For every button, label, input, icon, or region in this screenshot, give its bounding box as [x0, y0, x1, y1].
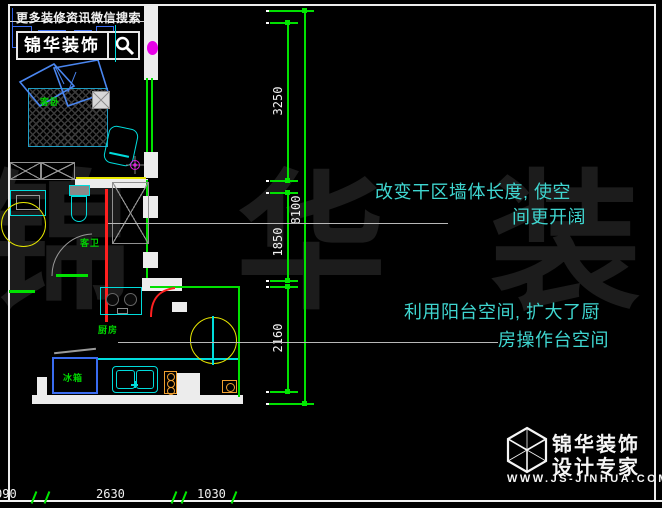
sink-basin: [136, 370, 154, 389]
ceiling-symbol-icon: [126, 156, 144, 174]
dim-node: [302, 401, 307, 406]
fridge-label: 冰箱: [63, 371, 83, 384]
dim-node: [302, 8, 307, 13]
dim-ext-dot: [266, 22, 269, 24]
sink-basin: [116, 370, 135, 389]
stove-knob: [117, 308, 128, 314]
kitchen-door-arc-red: [149, 286, 175, 317]
annotation-2-line-1: 利用阳台空间, 扩大了厨: [404, 298, 600, 324]
dim-ext-dot: [266, 286, 269, 288]
wardrobe: [10, 162, 41, 180]
dim-tick-line: [270, 22, 298, 24]
dim-tick-line: [270, 391, 298, 393]
logo-url: WWW.JS-JINHUA.COM: [507, 473, 662, 485]
frame-right-line: [654, 4, 656, 501]
frame-left-line: [8, 4, 10, 501]
dim-ext-dot: [266, 391, 269, 393]
leader-line-2: [118, 342, 498, 343]
dim-tick: [231, 491, 238, 504]
dim-ext-dot: [266, 192, 269, 194]
fixture-circle: [226, 383, 235, 392]
dim-tick: [181, 491, 188, 504]
wall-segment: [144, 152, 158, 178]
kitchen-sink: [112, 366, 158, 393]
dim-tick-line: [270, 280, 298, 282]
door-threshold: [9, 290, 35, 293]
window-line: [146, 78, 148, 154]
dim-tick-line: [268, 403, 314, 405]
annotation-2-line-2: 房操作台空间: [498, 326, 609, 352]
faucet: [134, 381, 136, 388]
door-swing-arc: [50, 232, 94, 278]
cad-underlay-line: [115, 25, 116, 62]
dim-ext-dot: [266, 180, 269, 182]
table-center-line: [212, 316, 214, 365]
search-box: 锦华装饰: [16, 31, 140, 60]
window-line: [151, 78, 153, 154]
dim-line: [304, 10, 306, 405]
annotation-1-line-2: 间更开阔: [512, 203, 586, 229]
room-label-bedroom: 客卧: [40, 95, 60, 108]
room-label-kitchen: 厨房: [98, 323, 118, 336]
dim-label-2630: 2630: [96, 487, 125, 501]
dim-node: [285, 278, 290, 283]
burner: [124, 293, 137, 306]
bath-round-fixture: [1, 202, 46, 247]
shower-area: [112, 182, 149, 244]
dim-line: [287, 23, 289, 181]
stove: [100, 287, 142, 315]
door-symbol-magenta: [147, 41, 158, 55]
dim-line: [287, 287, 289, 393]
promo-text: 更多装修资讯微信搜索: [16, 9, 141, 26]
toilet-bowl: [71, 196, 87, 222]
dim-tick-line: [270, 286, 298, 288]
search-box-label: 锦华装饰: [24, 33, 100, 58]
wall-accent-line: [76, 177, 146, 179]
dim-ext-dot: [266, 10, 269, 12]
wall-segment: [32, 395, 243, 404]
pillow: [92, 91, 110, 109]
round-table: [190, 317, 237, 364]
dim-ext-dot: [266, 280, 269, 282]
dim-node: [285, 389, 290, 394]
fridge-detail-line: [54, 348, 96, 354]
dim-node: [285, 284, 290, 289]
leader-line-1: [108, 223, 448, 224]
magnifier-icon: [114, 35, 136, 57]
dim-label-8100: 8100: [289, 180, 303, 240]
wall-segment: [37, 377, 47, 396]
dim-tick: [44, 491, 51, 504]
dim-ext-dot: [266, 403, 269, 405]
dim-label-2160: 2160: [271, 308, 285, 368]
dim-tick: [31, 491, 38, 504]
dim-label-090: 090: [0, 487, 17, 501]
dim-label-3250: 3250: [271, 71, 285, 131]
radiator-fixture: [164, 371, 177, 394]
fixture-circle: [167, 387, 175, 395]
frame-top-line: [8, 4, 656, 6]
cube-logo-icon: [505, 426, 549, 474]
toilet-tank: [69, 185, 90, 196]
dim-tick: [171, 491, 178, 504]
burner: [106, 293, 119, 306]
wardrobe: [41, 162, 75, 180]
wall-segment: [143, 252, 158, 268]
cad-floorplan-screenshot: 锦 华 装 饰 客卧: [0, 0, 662, 508]
annotation-1-line-1: 改变干区墙体长度, 使空: [375, 178, 571, 204]
dim-label-1030: 1030: [197, 487, 226, 501]
dim-tick-line: [268, 10, 314, 12]
search-box-divider: [107, 33, 109, 58]
dim-label-1850: 1850: [271, 212, 285, 272]
radiator-fixture: [222, 380, 237, 393]
dim-node: [285, 20, 290, 25]
